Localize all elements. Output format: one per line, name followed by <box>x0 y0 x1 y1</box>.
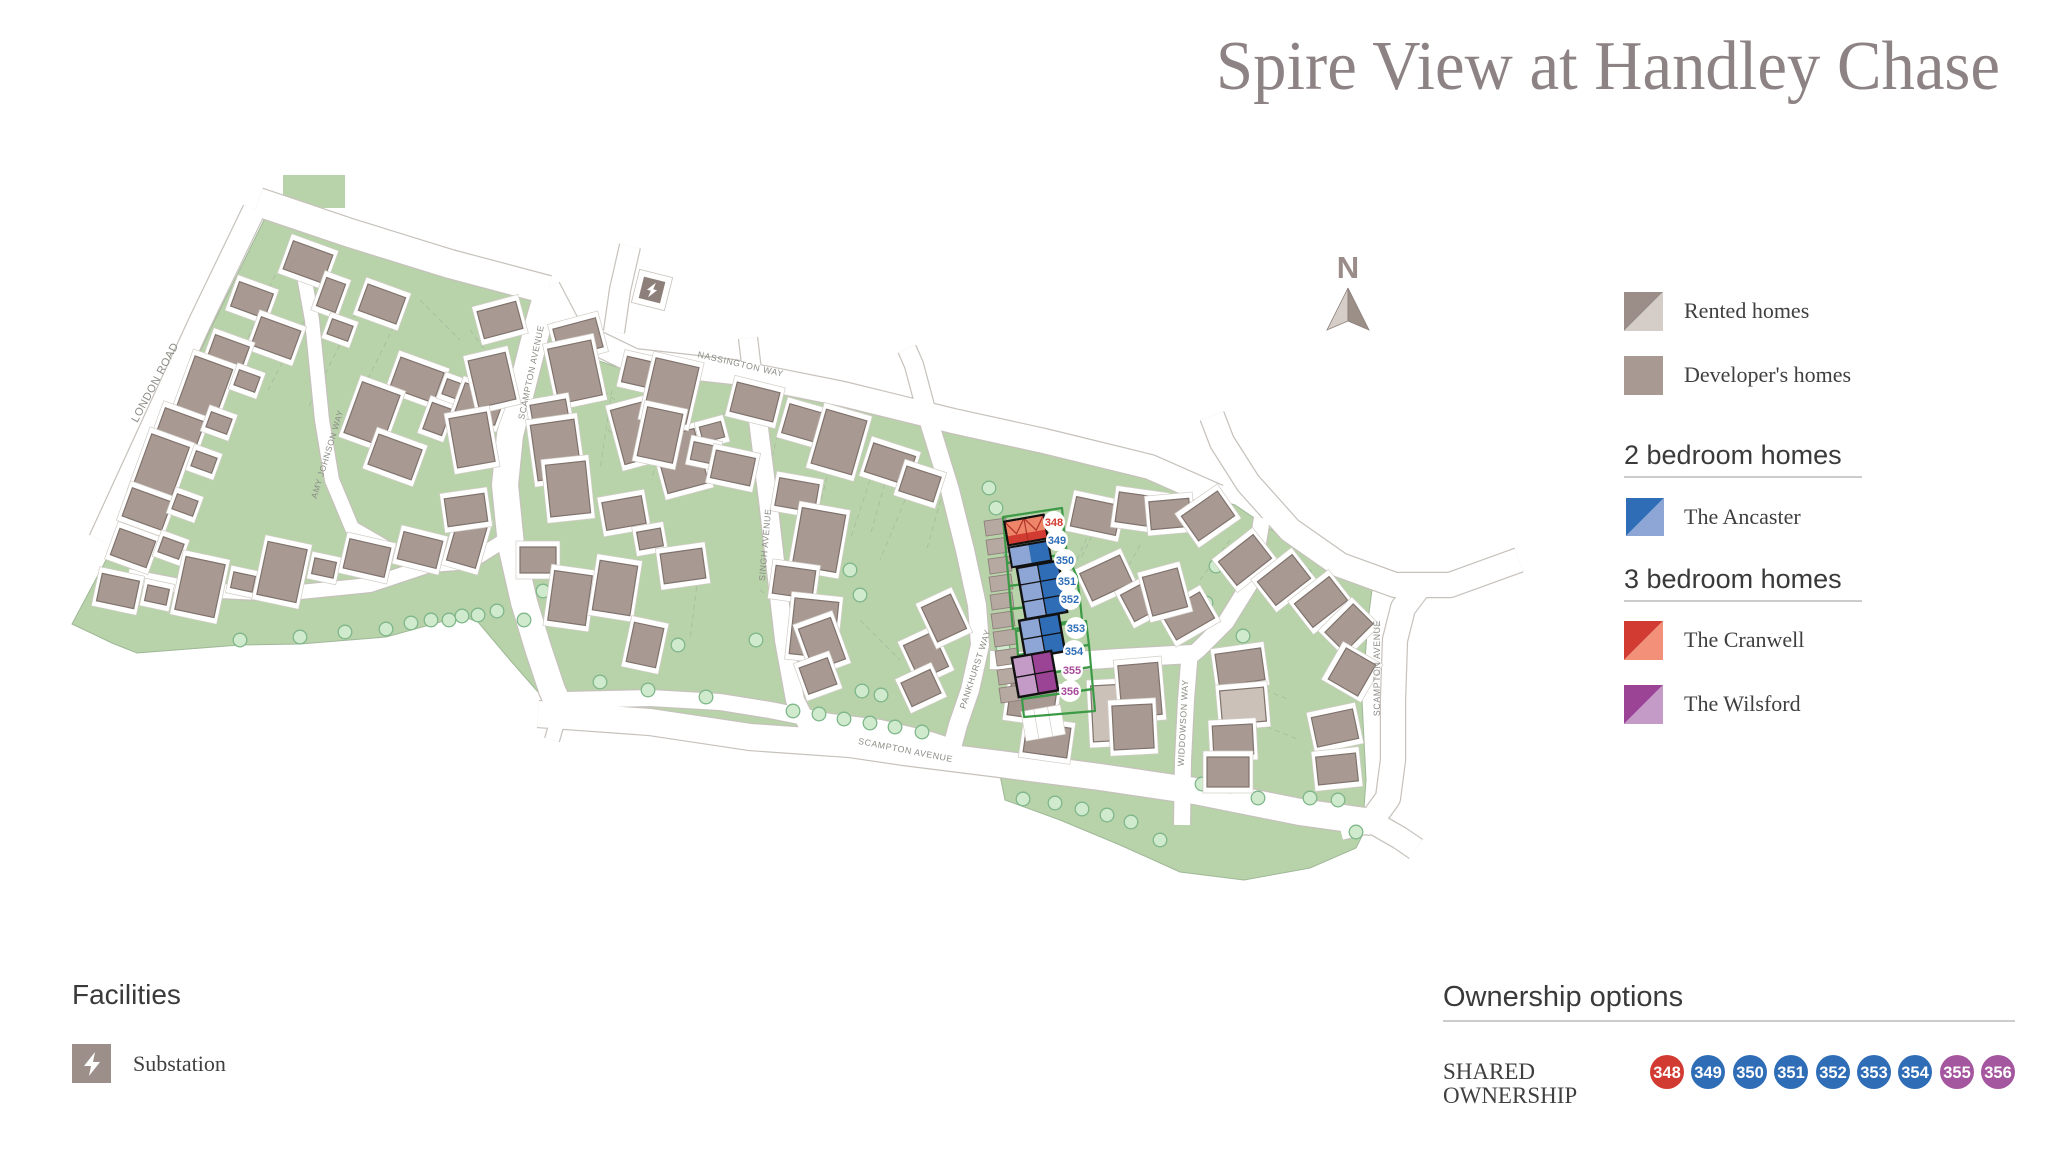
svg-text:354: 354 <box>1065 646 1084 658</box>
svg-text:349: 349 <box>1048 535 1066 547</box>
svg-text:355: 355 <box>1063 665 1081 677</box>
svg-text:348: 348 <box>1045 517 1063 529</box>
svg-text:Substation: Substation <box>133 1051 226 1076</box>
svg-text:351: 351 <box>1777 1064 1805 1082</box>
svg-text:350: 350 <box>1736 1064 1764 1082</box>
svg-text:3 bedroom homes: 3 bedroom homes <box>1624 564 1842 594</box>
svg-text:2 bedroom homes: 2 bedroom homes <box>1624 440 1842 470</box>
svg-text:352: 352 <box>1061 594 1079 606</box>
svg-text:N: N <box>1337 250 1359 285</box>
svg-text:SHARED: SHARED <box>1443 1059 1535 1084</box>
svg-text:353: 353 <box>1067 623 1085 635</box>
svg-text:350: 350 <box>1056 555 1074 567</box>
svg-text:SCAMPTON AVENUE: SCAMPTON AVENUE <box>1372 620 1382 716</box>
svg-text:353: 353 <box>1860 1064 1888 1082</box>
svg-text:348: 348 <box>1653 1064 1681 1082</box>
svg-text:Facilities: Facilities <box>72 979 181 1010</box>
svg-text:Ownership options: Ownership options <box>1443 981 1683 1013</box>
svg-text:The Ancaster: The Ancaster <box>1684 504 1801 529</box>
svg-text:Spire View at Handley Chase: Spire View at Handley Chase <box>1216 28 2000 105</box>
svg-text:OWNERSHIP: OWNERSHIP <box>1443 1083 1577 1108</box>
svg-text:356: 356 <box>1984 1064 2012 1082</box>
svg-text:Rented homes: Rented homes <box>1684 298 1809 323</box>
svg-text:The Cranwell: The Cranwell <box>1684 627 1804 652</box>
svg-text:355: 355 <box>1943 1064 1971 1082</box>
svg-text:349: 349 <box>1694 1064 1722 1082</box>
svg-text:351: 351 <box>1058 576 1076 588</box>
svg-text:352: 352 <box>1819 1064 1847 1082</box>
svg-text:Developer's homes: Developer's homes <box>1684 362 1851 387</box>
svg-text:354: 354 <box>1901 1064 1929 1082</box>
svg-text:356: 356 <box>1061 686 1079 698</box>
svg-text:The Wilsford: The Wilsford <box>1684 691 1801 716</box>
